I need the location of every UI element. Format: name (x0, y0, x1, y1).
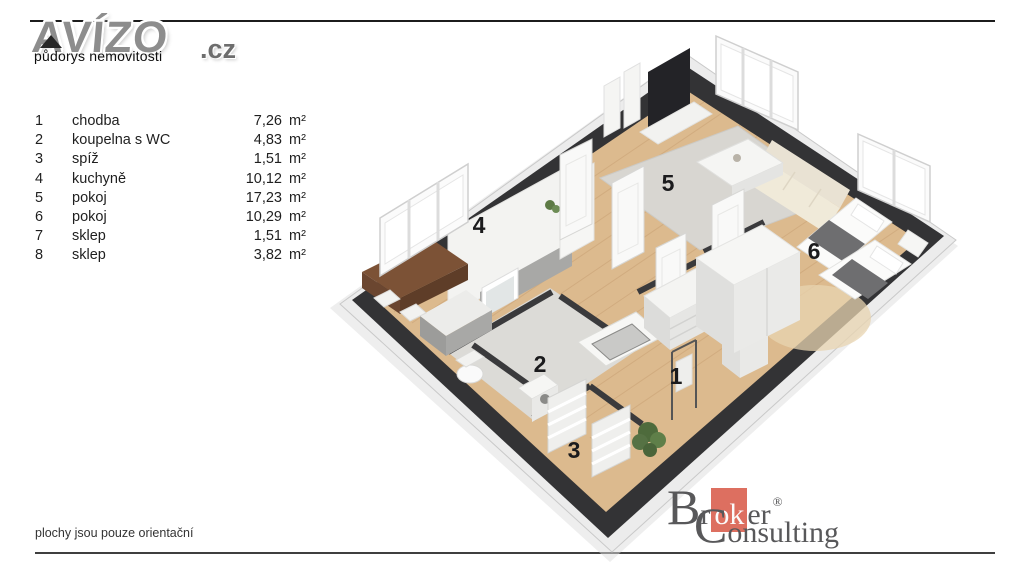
page: 1 2 3 4 5 6 AVÍZO .cz půdorys nemovitost… (0, 0, 1024, 576)
shelf-pillar (624, 63, 640, 128)
room-label-5: 5 (662, 170, 675, 196)
shelf-pillar (604, 77, 620, 137)
broker-logo-c: C (694, 497, 727, 553)
room-label-4: 4 (473, 212, 486, 238)
avizo-triangle-icon (40, 35, 62, 48)
door (560, 139, 592, 240)
room-label-2: 2 (534, 351, 547, 377)
broker-logo-line2: Consulting (694, 500, 839, 558)
broker-consulting-logo: Broker® Consulting (667, 486, 927, 558)
room-label-3: 3 (568, 437, 581, 463)
room-label-6: 6 (808, 238, 821, 264)
broker-logo-onsulting: onsulting (727, 516, 839, 549)
room-label-1: 1 (670, 363, 683, 389)
door (612, 166, 644, 269)
plan-subtitle: půdorys nemovitosti (34, 48, 162, 64)
vase (733, 154, 741, 162)
toilet (457, 365, 483, 383)
